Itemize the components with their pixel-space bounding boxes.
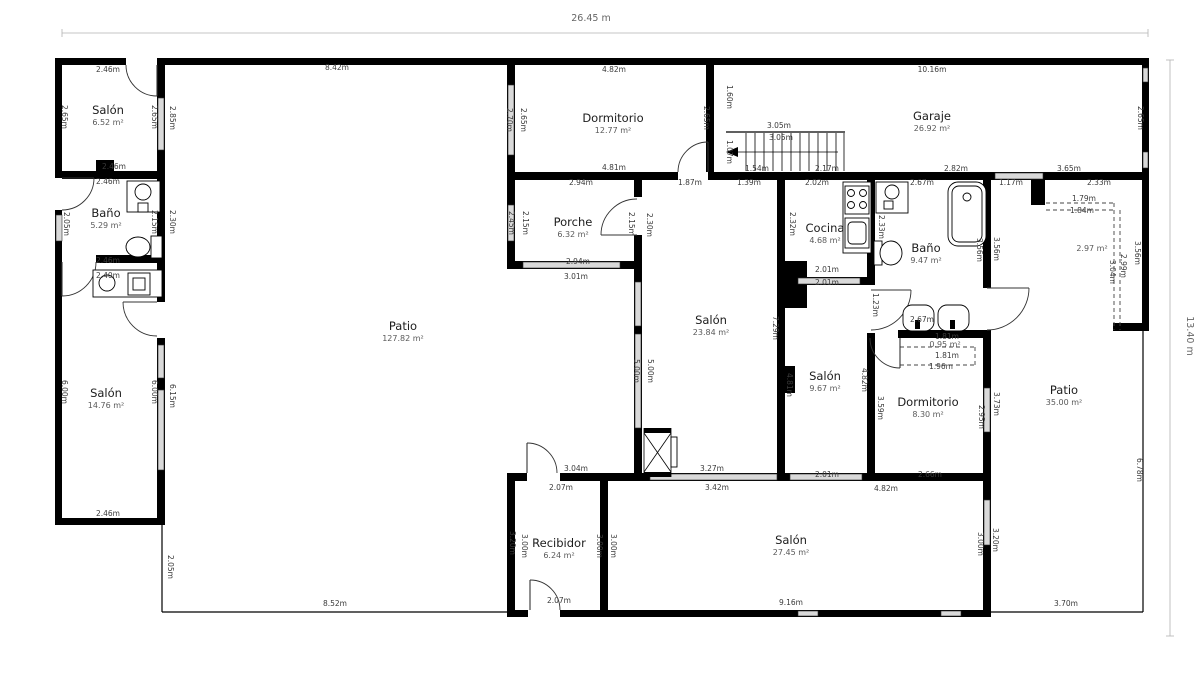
door-gap bbox=[157, 302, 165, 338]
fixture bbox=[860, 190, 867, 197]
dimension-label: 2.40m bbox=[96, 271, 120, 280]
dimension-label: 2.46m bbox=[96, 65, 120, 74]
dimension-label: 3.65m bbox=[1057, 164, 1081, 173]
dimension-label: 3.56m bbox=[1133, 241, 1142, 265]
dimension-label: 2.07m bbox=[547, 596, 571, 605]
dimension-label: 3.42m bbox=[705, 483, 729, 492]
dimension-label: 2.65m bbox=[1136, 106, 1145, 130]
room-area: 12.77 m² bbox=[595, 126, 631, 135]
dimension-label: 2.01m bbox=[815, 265, 839, 274]
dimension-label: 2.82m bbox=[944, 164, 968, 173]
room-area: 9.67 m² bbox=[809, 384, 840, 393]
dimension-label: 2.46m bbox=[102, 162, 126, 171]
room-area: 8.30 m² bbox=[912, 410, 943, 419]
dimension-label: 1.54m bbox=[745, 164, 769, 173]
dimension-label: 2.45m bbox=[507, 211, 516, 235]
wall bbox=[55, 518, 165, 525]
room-area: 6.24 m² bbox=[543, 551, 574, 560]
dimension-label: 6.15m bbox=[168, 384, 177, 408]
dimension-label: 4.82m bbox=[874, 484, 898, 493]
dimension-label: 3.05m bbox=[769, 133, 793, 142]
dimension-label: 6.78m bbox=[1135, 458, 1144, 482]
dimension-label: 3.20m bbox=[508, 531, 517, 555]
room-name: Salón bbox=[775, 533, 807, 547]
dimension-label: 2.46m bbox=[96, 509, 120, 518]
dimension-label: 1.79m bbox=[1072, 194, 1096, 203]
dimension-label: 4.81m bbox=[602, 163, 626, 172]
dimension-label: 2.30m bbox=[168, 210, 177, 234]
room-name: Salón bbox=[90, 386, 122, 400]
room-area: 14.76 m² bbox=[88, 401, 124, 410]
dimension-label: 2.94m bbox=[566, 257, 590, 266]
dimension-label: 2.95m bbox=[977, 405, 986, 429]
dimension-label: 2.05m bbox=[166, 555, 175, 579]
dimension-label: 5.00m bbox=[646, 359, 655, 383]
dimension-label: 3.20m bbox=[991, 528, 1000, 552]
dimension-label: 2.65m bbox=[60, 105, 69, 129]
dimension-label: 2.01m bbox=[815, 278, 839, 287]
dimension-label: 3.04m bbox=[564, 464, 588, 473]
room-name: Cocina bbox=[806, 221, 845, 235]
dimension-label: 1.23m bbox=[871, 293, 880, 317]
fixture bbox=[848, 190, 855, 197]
room-name: Dormitorio bbox=[897, 395, 958, 409]
dimension-label: 2.15m bbox=[521, 211, 530, 235]
dimension-label: 4.82m bbox=[860, 368, 869, 392]
dimension-label: 1.84m bbox=[1070, 206, 1094, 215]
fixture bbox=[644, 428, 671, 433]
dimension-label: 1.87m bbox=[678, 178, 702, 187]
dimension-label: 1.96m bbox=[929, 362, 953, 371]
dimension-label: 1.17m bbox=[999, 178, 1023, 187]
fixture bbox=[950, 320, 955, 329]
window-opening bbox=[798, 611, 818, 616]
dimension-label: 2.33m bbox=[1087, 178, 1111, 187]
room-name: Porche bbox=[554, 215, 593, 229]
dimension-label: 4.82m bbox=[602, 65, 626, 74]
door-gap bbox=[528, 610, 560, 617]
dimension-label: 9.16m bbox=[779, 598, 803, 607]
fixture bbox=[671, 437, 677, 467]
wall bbox=[1113, 323, 1149, 331]
fixture bbox=[963, 193, 971, 201]
dimension-label: 2.65m bbox=[702, 106, 711, 130]
room-name: Patio bbox=[1050, 383, 1078, 397]
room-area: 6.32 m² bbox=[557, 230, 588, 239]
dimension-label: 5.00m bbox=[632, 359, 641, 383]
dimension-label: 8.52m bbox=[323, 599, 347, 608]
door-gap bbox=[527, 473, 560, 481]
fixture bbox=[848, 202, 855, 209]
dimension-label: 3.00m bbox=[609, 534, 618, 558]
window-opening bbox=[158, 345, 164, 378]
wall bbox=[157, 58, 1149, 65]
fixture bbox=[885, 185, 899, 199]
fixture bbox=[138, 203, 148, 212]
dimension-label: 2.32m bbox=[788, 212, 797, 236]
room-area: 127.82 m² bbox=[382, 334, 424, 343]
dimension-label: 3.00m bbox=[520, 534, 529, 558]
room-name: Salón bbox=[809, 369, 841, 383]
room-name: Baño bbox=[911, 241, 940, 255]
door-gap bbox=[55, 178, 62, 210]
overall-height-label: 13.40 m bbox=[1184, 316, 1195, 355]
dimension-label: 3.04m bbox=[1108, 260, 1117, 284]
room-name: Salón bbox=[695, 313, 727, 327]
door-gap bbox=[62, 255, 96, 263]
dimension-label: 2.46m bbox=[96, 177, 120, 186]
room-name: Salón bbox=[92, 103, 124, 117]
room-area: 27.45 m² bbox=[773, 548, 809, 557]
dimension-label: 2.15m bbox=[627, 212, 636, 236]
dimension-label: 2.30m bbox=[645, 213, 654, 237]
window-opening bbox=[56, 215, 62, 241]
room-area: 9.47 m² bbox=[910, 256, 941, 265]
room-name: Dormitorio bbox=[582, 111, 643, 125]
dimension-label: 2.05m bbox=[62, 212, 71, 236]
wall bbox=[779, 261, 807, 308]
room-area: 5.29 m² bbox=[90, 221, 121, 230]
dimension-label: 2.66m bbox=[918, 470, 942, 479]
floor-plan: 26.45 m13.40 m2.46m8.42m4.82m10.16m2.46m… bbox=[0, 0, 1200, 675]
fixture bbox=[860, 202, 867, 209]
fixture bbox=[126, 237, 150, 257]
dimension-label: 2.94m bbox=[569, 178, 593, 187]
floor-plan-canvas: 26.45 m13.40 m2.46m8.42m4.82m10.16m2.46m… bbox=[0, 0, 1200, 675]
dimension-label: 3.27m bbox=[700, 464, 724, 473]
dimension-label: 10.16m bbox=[918, 65, 947, 74]
dimension-label: 3.00m bbox=[595, 534, 604, 558]
dimension-label: 3.00m bbox=[976, 532, 985, 556]
dimension-label: 8.42m bbox=[325, 63, 349, 72]
dimension-label: 3.56m bbox=[992, 237, 1001, 261]
dimension-label: 3.56m bbox=[975, 238, 984, 262]
room-area: 2.97 m² bbox=[1076, 244, 1107, 253]
dimension-label: 2.99m bbox=[1119, 254, 1128, 278]
dimension-label: 1.81m bbox=[935, 351, 959, 360]
dimension-label: 1.39m bbox=[737, 178, 761, 187]
room-area: 0.95 m² bbox=[929, 340, 960, 349]
fixture bbox=[884, 201, 893, 209]
dimension-label: 2.02m bbox=[805, 178, 829, 187]
wall bbox=[1142, 58, 1149, 331]
dimension-label: 2.65m bbox=[150, 105, 159, 129]
wall bbox=[507, 610, 991, 617]
dimension-label: 2.70m bbox=[505, 108, 514, 132]
window-opening bbox=[1143, 152, 1148, 168]
overall-width-label: 26.45 m bbox=[571, 13, 610, 24]
window-opening bbox=[635, 282, 641, 326]
dimension-label: 2.17m bbox=[815, 164, 839, 173]
door-gap bbox=[983, 288, 991, 330]
wall bbox=[1031, 180, 1045, 205]
dimension-label: 1.07m bbox=[725, 140, 734, 164]
door-gap bbox=[126, 58, 157, 66]
dimension-label: 2.07m bbox=[549, 483, 573, 492]
dimension-label: 3.73m bbox=[992, 392, 1001, 416]
dimension-label: 2.67m bbox=[910, 315, 934, 324]
dimension-label: 2.65m bbox=[519, 108, 528, 132]
room-area: 6.52 m² bbox=[92, 118, 123, 127]
dimension-label: 2.46m bbox=[96, 256, 120, 265]
dimension-label: 1.60m bbox=[725, 85, 734, 109]
fixture bbox=[880, 241, 902, 265]
room-name: Recibidor bbox=[532, 536, 586, 550]
dimension-label: 4.81m bbox=[785, 373, 794, 397]
fixture bbox=[133, 278, 145, 290]
dimension-label: 3.59m bbox=[876, 396, 885, 420]
window-opening bbox=[941, 611, 961, 616]
dimension-label: 3.70m bbox=[1054, 599, 1078, 608]
dimension-label: 7.29m bbox=[771, 316, 780, 340]
dimension-label: 3.01m bbox=[564, 272, 588, 281]
window-opening bbox=[1143, 68, 1148, 82]
fixture bbox=[151, 236, 162, 258]
fixture bbox=[644, 472, 671, 477]
dimension-label: 6.00m bbox=[150, 380, 159, 404]
dimension-label: 2.15m bbox=[150, 210, 159, 234]
room-name: Garaje bbox=[913, 109, 951, 123]
dimension-label: 2.01m bbox=[815, 470, 839, 479]
dimension-label: 2.67m bbox=[910, 178, 934, 187]
room-name: Baño bbox=[91, 206, 120, 220]
room-area: 4.68 m² bbox=[809, 236, 840, 245]
dimension-label: 3.05m bbox=[767, 121, 791, 130]
room-area: 23.84 m² bbox=[693, 328, 729, 337]
room-area: 26.92 m² bbox=[914, 124, 950, 133]
room-area: 35.00 m² bbox=[1046, 398, 1082, 407]
dimension-label: 6.00m bbox=[60, 380, 69, 404]
room-name: Patio bbox=[389, 319, 417, 333]
fixture bbox=[135, 184, 151, 200]
fixture bbox=[848, 222, 866, 244]
dimension-label: 2.85m bbox=[168, 106, 177, 130]
dimension-label: 2.33m bbox=[877, 215, 886, 239]
